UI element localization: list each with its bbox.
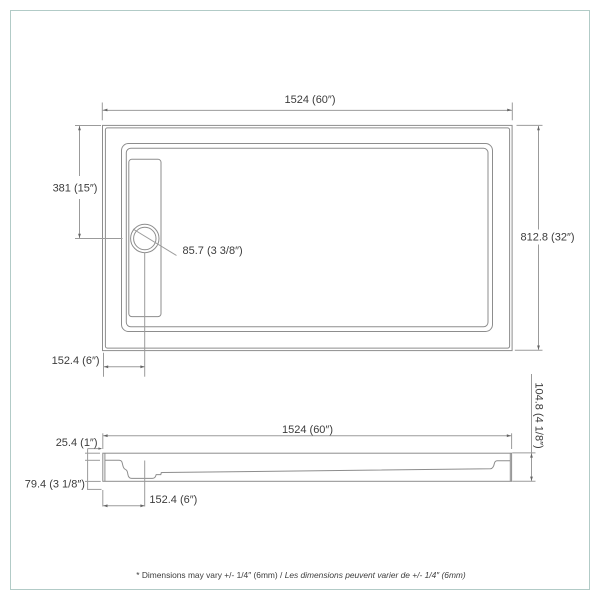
- svg-text:25.4 (1″): 25.4 (1″): [56, 437, 98, 449]
- svg-text:79.4 (3 1/8″): 79.4 (3 1/8″): [25, 479, 85, 491]
- svg-text:85.7 (3 3/8″): 85.7 (3 3/8″): [183, 245, 243, 257]
- svg-text:381 (15″): 381 (15″): [53, 183, 98, 195]
- svg-text:1524 (60″): 1524 (60″): [285, 94, 336, 106]
- svg-text:104.8 (4 1/8″): 104.8 (4 1/8″): [533, 382, 545, 448]
- svg-text:152.4 (6″): 152.4 (6″): [149, 494, 197, 506]
- svg-text:812.8 (32″): 812.8 (32″): [520, 232, 574, 244]
- svg-text:1524 (60″): 1524 (60″): [282, 424, 333, 436]
- svg-text:152.4 (6″): 152.4 (6″): [52, 355, 100, 367]
- svg-text:* Dimensions may vary +/- 1/4″: * Dimensions may vary +/- 1/4″ (6mm) / L…: [136, 570, 466, 580]
